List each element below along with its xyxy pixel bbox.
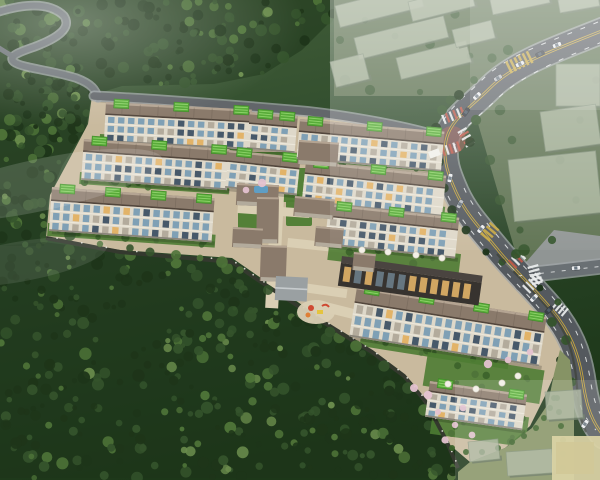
forest-tree <box>72 378 77 383</box>
window <box>307 176 314 183</box>
forest-tree <box>247 307 254 314</box>
forest-tree <box>169 376 178 385</box>
window <box>82 225 89 232</box>
forest-tree <box>211 400 216 405</box>
forest-tree <box>51 332 59 340</box>
forest-tree <box>39 461 50 472</box>
forest-tree <box>1 286 7 292</box>
window <box>182 222 189 229</box>
window <box>163 210 170 217</box>
forest-tree <box>308 409 314 415</box>
window <box>175 160 182 167</box>
forest-tree <box>215 302 225 312</box>
forest-tree <box>115 273 123 281</box>
window <box>413 325 421 334</box>
window <box>425 316 433 325</box>
forest-tree <box>176 407 182 413</box>
forest-tree <box>367 450 375 458</box>
forest-tree <box>300 462 306 468</box>
forest-tree <box>193 298 204 309</box>
forest-tree <box>17 407 25 415</box>
window <box>492 338 500 347</box>
forest-tree <box>77 317 89 329</box>
window <box>534 333 542 342</box>
window <box>164 178 171 185</box>
forest-tree <box>201 402 213 414</box>
forest-tree <box>142 271 153 282</box>
forest-tree <box>91 360 96 365</box>
forest-tree <box>159 363 165 369</box>
window <box>152 220 159 227</box>
forest-tree <box>112 305 117 310</box>
window <box>269 177 276 183</box>
forest-tree <box>177 398 184 405</box>
forest-tree <box>44 359 55 370</box>
forest-tree <box>133 409 141 417</box>
forest-tree <box>256 441 262 447</box>
window <box>463 333 471 342</box>
forest-tree <box>72 405 77 410</box>
blossom-tree <box>484 360 492 368</box>
forest-tree <box>64 403 73 412</box>
window <box>103 206 110 213</box>
window <box>185 161 192 168</box>
window <box>230 164 237 170</box>
forest-tree <box>117 379 124 386</box>
blossom-tree <box>505 357 512 364</box>
forest-tree <box>384 386 394 396</box>
forest-tree <box>340 428 352 440</box>
haze-bottom-right <box>455 380 600 480</box>
window <box>382 332 390 341</box>
forest-tree <box>199 335 206 342</box>
window <box>132 228 139 235</box>
forest-tree <box>37 286 45 294</box>
forest-tree <box>245 373 255 383</box>
slope-tree <box>350 340 362 352</box>
forest-tree <box>394 444 404 454</box>
window <box>214 181 221 188</box>
window <box>62 223 69 230</box>
forest-tree <box>215 319 225 329</box>
forest-tree <box>188 411 194 417</box>
forest-tree <box>232 306 236 310</box>
window <box>484 325 492 334</box>
forest-tree <box>248 360 254 366</box>
window <box>142 219 149 226</box>
forest-tree <box>354 463 362 471</box>
window <box>474 324 482 333</box>
forest-tree <box>310 428 316 434</box>
window <box>184 179 191 186</box>
window <box>404 324 412 333</box>
forest-tree <box>4 157 9 162</box>
forest-tree <box>217 334 225 342</box>
forest-tree <box>59 386 64 391</box>
forest-tree <box>81 455 92 466</box>
blossom-tree <box>243 187 250 194</box>
blossom-tree <box>435 409 441 415</box>
forest-tree <box>194 346 203 355</box>
forest-tree <box>360 453 365 458</box>
forest-tree <box>316 424 328 436</box>
window <box>433 329 441 338</box>
forest-tree <box>413 463 420 470</box>
window <box>395 311 403 320</box>
window <box>73 204 80 211</box>
forest-tree <box>45 422 52 429</box>
slope-tree <box>236 266 244 274</box>
forest-tree <box>32 332 41 341</box>
forest-tree <box>73 294 79 300</box>
window <box>249 175 256 181</box>
window <box>260 167 267 173</box>
forest-tree <box>354 400 363 409</box>
window <box>441 341 449 350</box>
terrace-parasol <box>445 381 451 387</box>
forest-tree <box>365 407 370 412</box>
window <box>72 224 79 231</box>
car <box>571 265 580 270</box>
forest-tree <box>109 286 114 291</box>
window <box>112 227 119 234</box>
forest-tree <box>321 359 331 369</box>
window <box>415 314 423 323</box>
window <box>316 186 323 193</box>
forest-tree <box>225 466 231 472</box>
window <box>429 402 436 408</box>
window <box>374 319 382 328</box>
forest-tree <box>100 471 109 480</box>
low-rise-roof <box>260 245 287 282</box>
forest-tree <box>27 385 38 396</box>
forest-tree <box>69 318 77 326</box>
forest-tree <box>431 464 443 476</box>
forest-tree <box>176 359 184 367</box>
forest-tree <box>194 440 201 447</box>
window <box>154 177 161 184</box>
window <box>202 223 209 230</box>
forest-tree <box>78 432 83 437</box>
fog-top-left <box>0 0 340 150</box>
window <box>439 404 446 410</box>
car-roof-glass <box>574 266 577 269</box>
window <box>435 317 443 326</box>
window <box>239 174 246 180</box>
forest-tree <box>78 371 90 383</box>
window <box>250 166 257 172</box>
forest-tree <box>206 284 216 294</box>
slope-tree <box>216 256 228 268</box>
window <box>491 349 499 358</box>
window <box>510 352 518 361</box>
forest-tree <box>228 325 237 334</box>
slope-tree <box>325 327 336 338</box>
slope-tree <box>197 255 204 262</box>
window <box>172 221 179 228</box>
low-rise-ridge <box>257 197 279 199</box>
forest-tree <box>10 437 22 449</box>
window <box>440 395 447 401</box>
slope-tree <box>171 250 181 260</box>
window <box>402 335 410 344</box>
forest-tree <box>120 266 129 275</box>
window <box>502 340 510 349</box>
forest-tree <box>237 446 249 458</box>
window <box>142 229 149 236</box>
forest-tree <box>107 444 115 452</box>
forest-tree <box>291 382 301 392</box>
window <box>481 348 489 357</box>
forest-tree <box>318 398 326 406</box>
forest-tree <box>195 410 203 418</box>
forest-tree <box>91 403 98 410</box>
slope-tree <box>146 248 155 257</box>
forest-tree <box>241 433 246 438</box>
forest-tree <box>179 306 184 311</box>
forest-tree <box>308 465 313 470</box>
forest-tree <box>118 300 126 308</box>
window <box>471 346 479 355</box>
window <box>123 208 130 215</box>
forest-tree <box>267 417 277 427</box>
window <box>165 159 172 166</box>
wall-lamp-post <box>397 369 399 371</box>
forest-tree <box>99 368 110 379</box>
forest-tree <box>339 393 350 404</box>
forest-tree <box>165 338 170 343</box>
window <box>52 223 59 230</box>
forest-tree <box>411 425 418 432</box>
window <box>193 213 200 220</box>
forest-tree <box>140 381 148 389</box>
forest-tree <box>132 425 140 433</box>
window <box>73 214 80 221</box>
window <box>520 354 528 363</box>
forest-tree <box>206 332 212 338</box>
forest-tree <box>129 431 135 437</box>
forest-tree <box>7 397 13 403</box>
forest-tree <box>68 296 74 302</box>
green-roof-patch <box>282 152 298 163</box>
blossom-tree <box>410 384 418 392</box>
wall-lamp-post <box>376 353 378 355</box>
window <box>195 171 202 178</box>
forest-tree <box>132 369 144 381</box>
window <box>306 185 313 192</box>
window <box>362 329 370 338</box>
forest-tree <box>317 324 322 329</box>
forest-tree <box>218 455 228 465</box>
terrace-parasol <box>413 252 419 258</box>
playground-equipment-red <box>308 305 314 311</box>
window <box>174 179 181 186</box>
window <box>53 213 60 220</box>
forest-tree <box>73 396 79 402</box>
forest-tree <box>40 213 46 219</box>
window <box>386 310 394 319</box>
forest-tree <box>185 329 194 338</box>
playground-equipment-yellow <box>317 310 323 314</box>
forest-tree <box>200 391 209 400</box>
forest-tree <box>40 221 47 228</box>
forest-tree <box>30 410 40 420</box>
forest-tree <box>343 450 348 455</box>
window <box>162 230 169 237</box>
forest-tree <box>253 343 258 348</box>
forest-tree <box>181 447 188 454</box>
forest-tree <box>136 280 142 286</box>
forest-tree <box>277 345 283 351</box>
window <box>113 207 120 214</box>
forest-tree <box>103 302 110 309</box>
forest-tree <box>235 407 241 413</box>
window <box>63 213 70 220</box>
forest-tree <box>359 350 366 357</box>
forest-tree <box>367 356 377 366</box>
window <box>412 337 420 346</box>
forest-tree <box>429 451 436 458</box>
window <box>192 223 199 230</box>
window <box>514 330 522 339</box>
forest-tree <box>172 334 181 343</box>
forest-tree <box>171 396 177 402</box>
forest-tree <box>406 399 412 405</box>
window <box>133 208 140 215</box>
window <box>423 327 431 336</box>
forest-tree <box>305 447 311 453</box>
window <box>431 340 439 349</box>
forest-tree <box>21 230 32 241</box>
forest-tree <box>135 434 145 444</box>
forest-tree <box>182 463 187 468</box>
window <box>215 172 222 179</box>
forest-tree <box>36 373 41 378</box>
forest-tree <box>273 330 280 337</box>
wall-lamp-post <box>263 281 265 283</box>
wall-lamp-post <box>341 330 343 332</box>
forest-tree <box>400 413 409 422</box>
wall-lamp-post <box>252 274 254 276</box>
window <box>270 168 277 174</box>
window <box>113 217 120 224</box>
forest-tree <box>164 344 172 352</box>
forest-tree <box>29 454 35 460</box>
wall-lamp-post <box>441 430 443 432</box>
forest-tree <box>152 340 161 349</box>
wall-lamp-post <box>244 268 246 270</box>
forest-tree <box>69 427 78 436</box>
blossom-tree <box>441 436 448 443</box>
window <box>352 327 360 336</box>
window <box>202 233 209 240</box>
forest-tree <box>269 365 279 375</box>
rendering-canvas <box>0 0 600 480</box>
forest-tree <box>3 421 10 428</box>
wall-lamp-post <box>136 251 138 253</box>
forest-tree <box>246 331 254 339</box>
forest-tree <box>281 443 288 450</box>
window <box>173 211 180 218</box>
window <box>229 172 236 178</box>
forest-tree <box>5 389 13 397</box>
forest-tree <box>277 383 289 395</box>
forest-tree <box>116 420 123 427</box>
window <box>133 218 140 225</box>
window <box>93 206 100 213</box>
window <box>194 180 201 187</box>
forest-tree <box>72 456 82 466</box>
window <box>524 331 532 340</box>
window <box>203 213 210 220</box>
forest-tree <box>144 361 152 369</box>
window <box>421 338 429 347</box>
forest-tree <box>159 272 167 280</box>
window <box>356 305 364 314</box>
wall-lamp-post <box>211 257 213 259</box>
window <box>290 170 297 176</box>
forest-tree <box>300 429 308 437</box>
forest-tree <box>115 444 124 453</box>
window <box>172 231 179 238</box>
window <box>185 170 192 177</box>
forest-tree <box>187 264 196 273</box>
blossom-tree <box>258 179 266 187</box>
forest-tree <box>347 450 358 461</box>
forest-tree <box>13 385 21 393</box>
window <box>289 179 296 185</box>
forest-tree <box>37 303 44 310</box>
forest-tree <box>49 391 58 400</box>
forest-tree <box>198 457 209 468</box>
window <box>93 216 100 223</box>
forest-tree <box>165 370 170 375</box>
window <box>280 169 287 175</box>
window <box>455 320 463 329</box>
green-roof-patch <box>196 194 212 204</box>
forest-tree <box>293 442 301 450</box>
terrace-parasol <box>439 255 445 261</box>
blossom-tree <box>424 391 433 400</box>
window <box>92 226 99 233</box>
forest-tree <box>10 315 20 325</box>
forest-tree <box>271 404 280 413</box>
forest-tree <box>335 343 345 353</box>
wall-lamp-post <box>328 323 330 325</box>
window <box>279 178 286 184</box>
forest-tree <box>369 471 377 479</box>
forest-tree <box>260 343 270 353</box>
window <box>483 336 491 345</box>
forest-tree <box>173 344 183 354</box>
window <box>473 335 481 344</box>
forest-tree <box>40 403 45 408</box>
forest-tree <box>60 415 67 422</box>
window <box>445 319 453 328</box>
green-roof-patch <box>528 311 544 322</box>
playground-equipment-orange <box>306 313 311 318</box>
window <box>183 212 190 219</box>
low-rise-block <box>232 227 263 249</box>
forest-tree <box>220 289 230 299</box>
forest-tree <box>56 457 68 469</box>
forest-tree <box>63 330 71 338</box>
forest-tree <box>40 384 51 395</box>
window <box>240 165 247 171</box>
forest-tree <box>42 452 53 463</box>
forest-tree <box>361 428 367 434</box>
slope-tree <box>378 360 389 371</box>
